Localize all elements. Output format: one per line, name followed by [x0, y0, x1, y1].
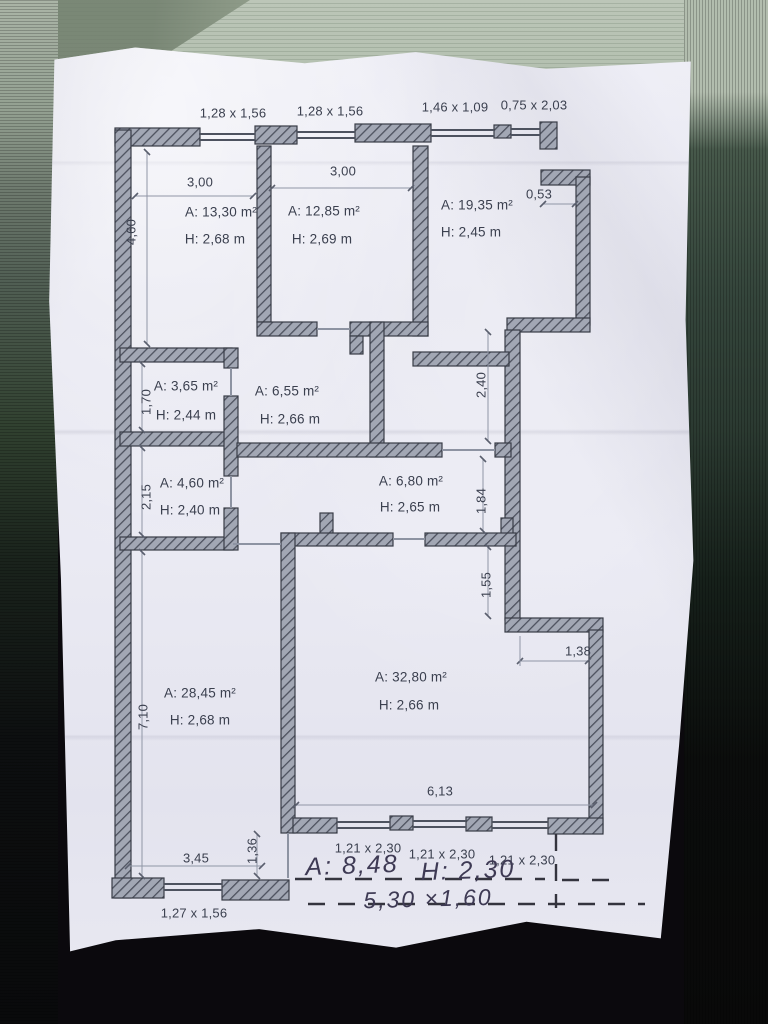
- room8-height-label: H: 2,68 m: [170, 713, 230, 728]
- dim-v710: 7,10: [136, 704, 151, 730]
- room2-height-label: H: 2,69 m: [292, 232, 352, 247]
- room4-height-label: H: 2,44 m: [156, 408, 216, 423]
- room3-height-label: H: 2,45 m: [441, 225, 501, 240]
- dim-v240: 2,40: [474, 372, 489, 398]
- top-window-label-2: 1,28 x 1,56: [297, 104, 364, 119]
- room6-height-label: H: 2,40 m: [160, 503, 220, 518]
- dim-h345: 3,45: [183, 851, 209, 866]
- dim-h613: 6,13: [427, 784, 453, 799]
- hall-area-label: A: 6,80 m²: [379, 474, 443, 489]
- dim-v155: 1,55: [479, 572, 494, 598]
- dim-room2-width: 3,00: [330, 164, 356, 179]
- room1-area-label: A: 13,30 m²: [185, 205, 257, 220]
- dim-v170: 1,70: [139, 389, 154, 415]
- dim-room1-width: 3,00: [187, 175, 213, 190]
- dim-v184: 1,84: [474, 488, 489, 514]
- room5-area-label: A: 6,55 m²: [255, 384, 319, 399]
- dim-notch: 0,53: [526, 187, 552, 202]
- dim-v215: 2,15: [139, 484, 154, 510]
- label-layer: 1,28 x 1,56 1,28 x 1,56 1,46 x 1,09 0,75…: [0, 0, 768, 1024]
- top-window-label-1: 1,28 x 1,56: [200, 106, 267, 121]
- top-window-label-4: 0,75 x 2,03: [501, 98, 568, 113]
- top-window-label-3: 1,46 x 1,09: [422, 100, 489, 115]
- room4-area-label: A: 3,65 m²: [154, 379, 218, 394]
- dim-v136: 1,36: [245, 838, 260, 864]
- handwritten-balcony-area: A: 8,48: [305, 850, 399, 882]
- dim-h138: 1,38: [565, 644, 591, 659]
- dim-room1-depth: 4,60: [124, 219, 139, 245]
- handwritten-balcony-height: H: 2,30: [420, 855, 516, 887]
- room9-area-label: A: 32,80 m²: [375, 670, 447, 685]
- room9-height-label: H: 2,66 m: [379, 698, 439, 713]
- hall-height-label: H: 2,65 m: [380, 500, 440, 515]
- room8-area-label: A: 28,45 m²: [164, 686, 236, 701]
- bottom-left-window-label: 1,27 x 1,56: [161, 906, 228, 921]
- room6-area-label: A: 4,60 m²: [160, 476, 224, 491]
- room5-height-label: H: 2,66 m: [260, 412, 320, 427]
- room2-area-label: A: 12,85 m²: [288, 204, 360, 219]
- room3-area-label: A: 19,35 m²: [441, 198, 513, 213]
- handwritten-balcony-size: 5,30 ×1,60: [363, 884, 493, 914]
- photo-of-floor-plan: 1,28 x 1,56 1,28 x 1,56 1,46 x 1,09 0,75…: [0, 0, 768, 1024]
- room1-height-label: H: 2,68 m: [185, 232, 245, 247]
